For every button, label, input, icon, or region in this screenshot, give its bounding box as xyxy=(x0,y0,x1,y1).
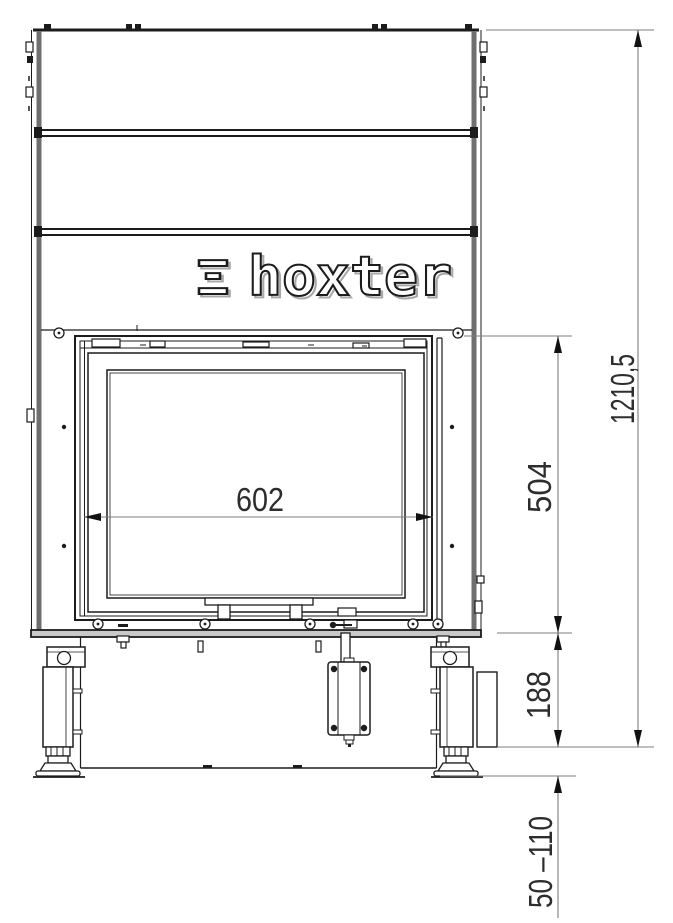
dim-foot-range: 50 –110 xyxy=(522,776,562,918)
leg-column xyxy=(43,667,73,747)
screw xyxy=(93,619,103,629)
screw xyxy=(433,619,443,629)
door-outer-frame xyxy=(75,336,432,620)
bottom-rail xyxy=(31,630,481,637)
upper-rail-2 xyxy=(34,226,478,237)
actuator-plate xyxy=(328,662,370,735)
door-mid-frame xyxy=(80,341,427,616)
base-slot xyxy=(198,641,203,652)
dim-label-glass-width: 602 xyxy=(236,481,284,518)
top-tabs xyxy=(44,24,472,29)
bracket-hole xyxy=(58,652,71,665)
plate-bolt xyxy=(361,725,367,731)
foot-plate xyxy=(434,771,478,776)
screw xyxy=(305,619,315,629)
right-leg xyxy=(431,647,473,747)
upper-casing xyxy=(26,24,487,637)
logo-text: hoxter xyxy=(248,245,452,308)
screw xyxy=(408,619,418,629)
screw xyxy=(200,619,210,629)
dimension-lines: 1210,5 504 188 50 –110 602 xyxy=(84,30,654,918)
dim-glass-width: 602 xyxy=(84,481,433,521)
margin-dot xyxy=(62,425,66,429)
margin-dot xyxy=(450,544,454,548)
plate-bolt xyxy=(331,666,337,672)
leg-stub xyxy=(431,689,440,693)
margin-dot xyxy=(450,425,454,429)
dim-door-height: 504 xyxy=(521,336,562,633)
leg-stub xyxy=(431,730,440,734)
upper-rail-1 xyxy=(34,127,478,138)
dim-label-overall-height: 1210,5 xyxy=(604,354,641,424)
right-trim-strip xyxy=(437,338,442,628)
door-latch xyxy=(330,608,357,628)
door-assembly xyxy=(54,328,463,629)
left-leg xyxy=(43,647,85,747)
handle-post-left xyxy=(218,605,230,619)
side-connection-box xyxy=(477,672,497,747)
dim-base-height: 188 xyxy=(520,633,562,747)
left-side-clips xyxy=(26,42,34,422)
foot-plate xyxy=(36,771,80,776)
screw xyxy=(54,328,64,338)
bracket-hole xyxy=(444,652,457,665)
brand-logo: Ξ hoxter Ξ hoxter xyxy=(195,245,455,311)
leg-stub xyxy=(73,730,82,734)
dim-label-door-height: 504 xyxy=(521,461,558,513)
base-slot xyxy=(316,641,321,652)
base-panel-sides xyxy=(81,637,437,768)
left-foot xyxy=(33,747,85,777)
hinge-blocks xyxy=(92,339,426,348)
base-dash xyxy=(293,765,302,768)
dim-overall-height: 1210,5 xyxy=(604,30,642,747)
right-foot xyxy=(431,747,483,777)
damper-actuator xyxy=(328,633,370,747)
handle-post-right xyxy=(290,605,302,619)
leg-stub xyxy=(73,689,82,693)
fireplace-drawing: Ξ hoxter Ξ hoxter xyxy=(0,0,673,923)
logo-glyph: Ξ xyxy=(195,251,231,305)
plate-bolt xyxy=(361,666,367,672)
margin-dot xyxy=(62,544,66,548)
screw xyxy=(453,328,463,338)
dim-label-foot-range: 50 –110 xyxy=(522,816,559,908)
technical-drawing-canvas: Ξ hoxter Ξ hoxter xyxy=(0,0,673,923)
handle-bar xyxy=(205,598,313,605)
dim-label-base-height: 188 xyxy=(520,671,557,719)
leg-column xyxy=(440,667,473,747)
plate-bolt xyxy=(331,725,337,731)
base-dash xyxy=(203,765,212,768)
